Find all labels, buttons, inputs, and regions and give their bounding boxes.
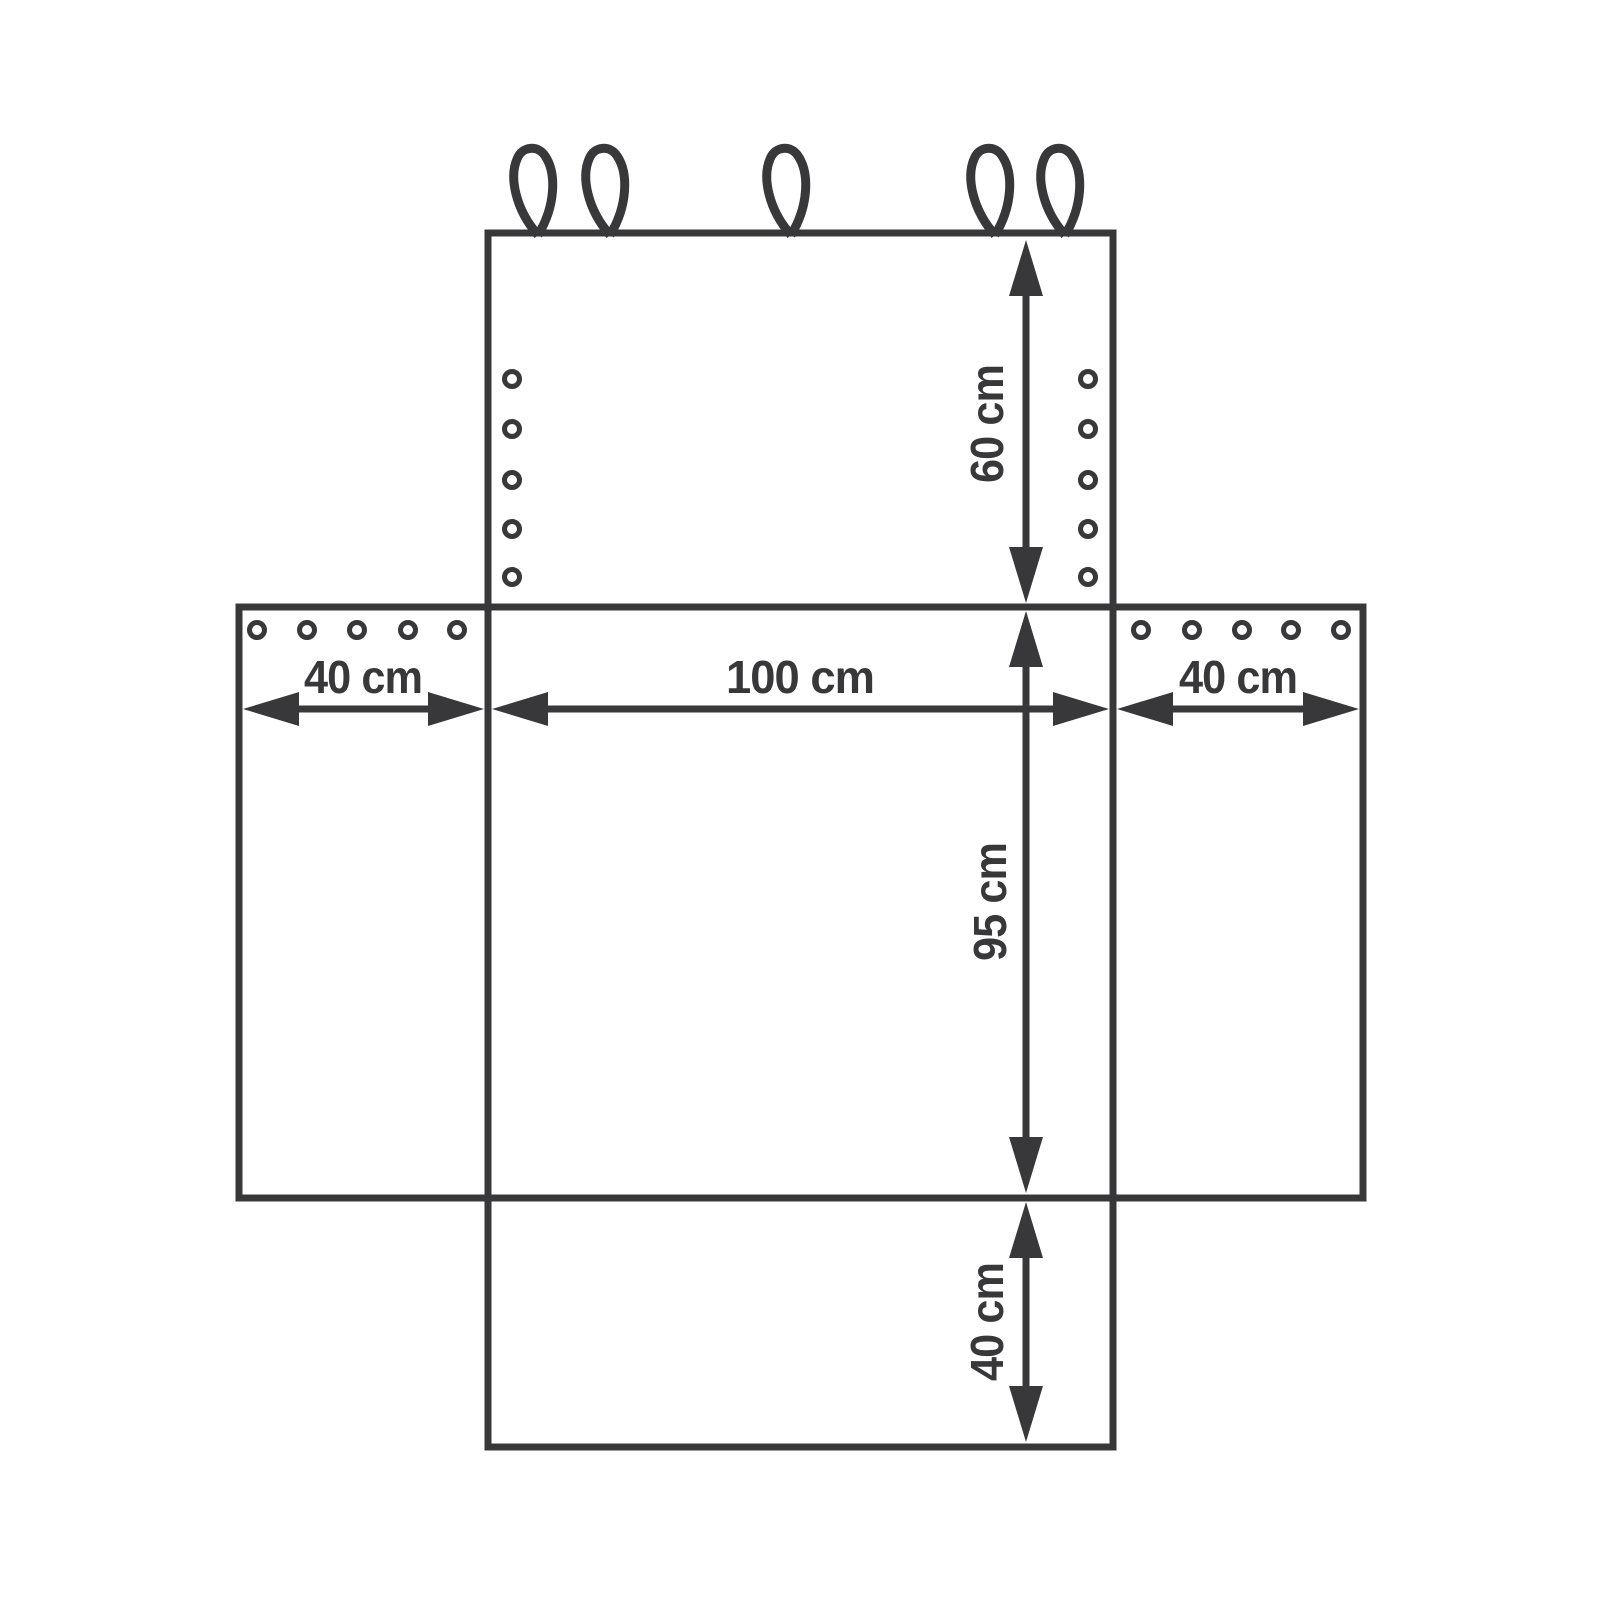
eyelet-icon	[401, 623, 416, 638]
eyelet-icon	[1235, 623, 1250, 638]
dim-arrow-bottom-height-40cm	[1009, 1202, 1043, 1442]
eyelet-icon	[1134, 623, 1149, 638]
arrowhead-down-icon	[1009, 547, 1043, 603]
arrowhead-up-icon	[1009, 611, 1043, 667]
hanging-loop-icon	[1038, 147, 1084, 237]
eyelet-icon	[1081, 570, 1096, 585]
eyelet-icon	[450, 623, 465, 638]
eyelet-icon	[1081, 473, 1096, 488]
hanging-loop-icon	[583, 147, 629, 237]
hanging-loop-icon	[764, 147, 810, 237]
eyelet-icon	[505, 473, 520, 488]
arrowhead-right-icon	[428, 692, 484, 726]
right-flap-eyelet-row	[1134, 623, 1349, 638]
dim-label-center-width: 100 cm	[726, 651, 874, 703]
arrowhead-down-icon	[1009, 1386, 1043, 1442]
eyelet-icon	[1284, 623, 1299, 638]
eyelet-icon	[1081, 372, 1096, 387]
top-panel-right-eyelet-column	[1081, 372, 1096, 585]
eyelet-icon	[250, 623, 265, 638]
hanging-loop-icon	[968, 147, 1014, 237]
arrowhead-right-icon	[1053, 692, 1109, 726]
dim-label-top-height: 60 cm	[961, 365, 1013, 483]
eyelet-icon	[505, 422, 520, 437]
dim-label-left-flap-width: 40 cm	[304, 651, 422, 703]
arrowhead-up-icon	[1009, 240, 1043, 296]
dim-label-right-flap-width: 40 cm	[1179, 651, 1297, 703]
diagram-canvas: 40 cm 100 cm 40 cm 60 cm 95 cm 40 cm	[0, 0, 1600, 1600]
eyelet-icon	[1185, 623, 1200, 638]
hanging-loops	[511, 147, 1084, 237]
eyelet-icon	[505, 372, 520, 387]
top-panel-left-eyelet-column	[505, 372, 520, 585]
dimension-diagram: 40 cm 100 cm 40 cm 60 cm 95 cm 40 cm	[0, 0, 1600, 1600]
arrowhead-left-icon	[492, 692, 548, 726]
arrowhead-up-icon	[1009, 1202, 1043, 1258]
eyelet-icon	[1334, 623, 1349, 638]
dim-label-center-height: 95 cm	[964, 843, 1016, 961]
arrowhead-left-icon	[243, 692, 299, 726]
eyelet-icon	[1081, 522, 1096, 537]
eyelet-icon	[1081, 422, 1096, 437]
panel-outlines	[239, 233, 1363, 1447]
eyelet-icon	[350, 623, 365, 638]
hanging-loop-icon	[511, 147, 557, 237]
dim-arrow-top-height-60cm	[1009, 240, 1043, 603]
dim-label-bottom-height: 40 cm	[961, 1263, 1013, 1381]
arrowhead-right-icon	[1303, 692, 1359, 726]
arrowhead-left-icon	[1117, 692, 1173, 726]
arrowhead-down-icon	[1009, 1137, 1043, 1193]
left-flap-eyelet-row	[250, 623, 465, 638]
eyelet-icon	[505, 522, 520, 537]
eyelet-icon	[300, 623, 315, 638]
eyelet-icon	[505, 570, 520, 585]
